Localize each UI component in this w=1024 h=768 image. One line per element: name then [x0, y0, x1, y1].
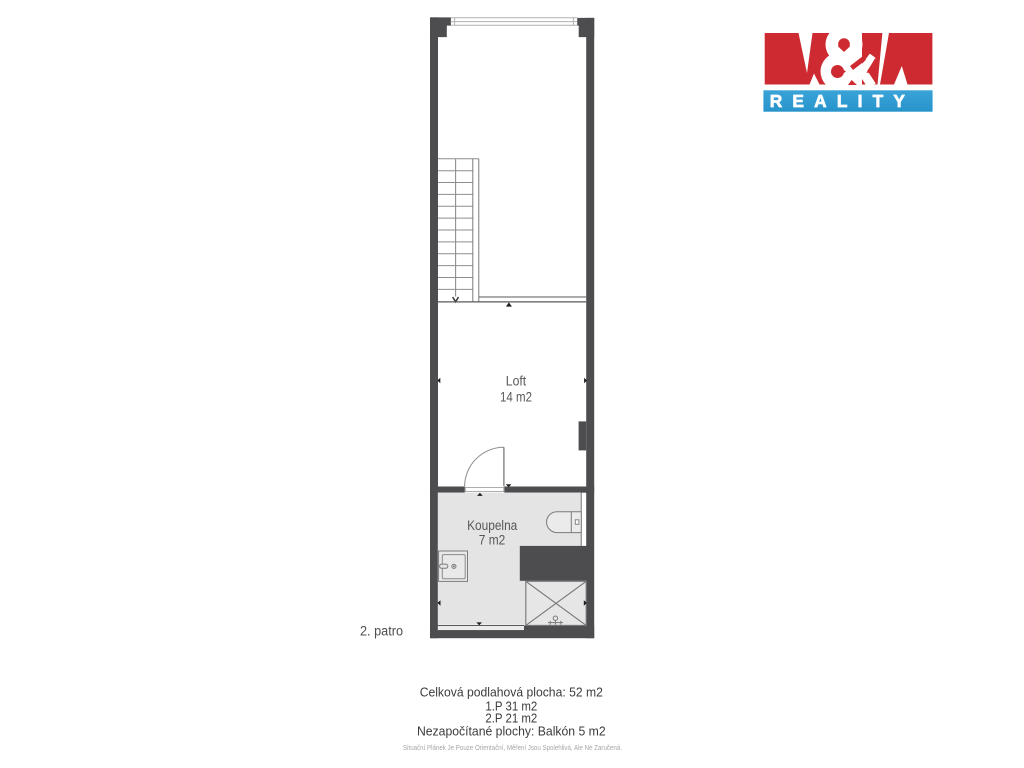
svg-text:7 m2: 7 m2 [479, 532, 506, 547]
svg-text:REALITY: REALITY [770, 91, 915, 111]
svg-text:14 m2: 14 m2 [500, 389, 532, 404]
svg-text:Koupelna: Koupelna [467, 518, 518, 533]
svg-text:Loft: Loft [506, 373, 527, 388]
svg-text:Nezapočítané plochy: Balkón 5: Nezapočítané plochy: Balkón 5 m2 [417, 723, 606, 738]
svg-text:2. patro: 2. patro [360, 623, 403, 638]
svg-text:Situační Plánek Je Pouze Orien: Situační Plánek Je Pouze Orientační, Měř… [403, 743, 622, 752]
